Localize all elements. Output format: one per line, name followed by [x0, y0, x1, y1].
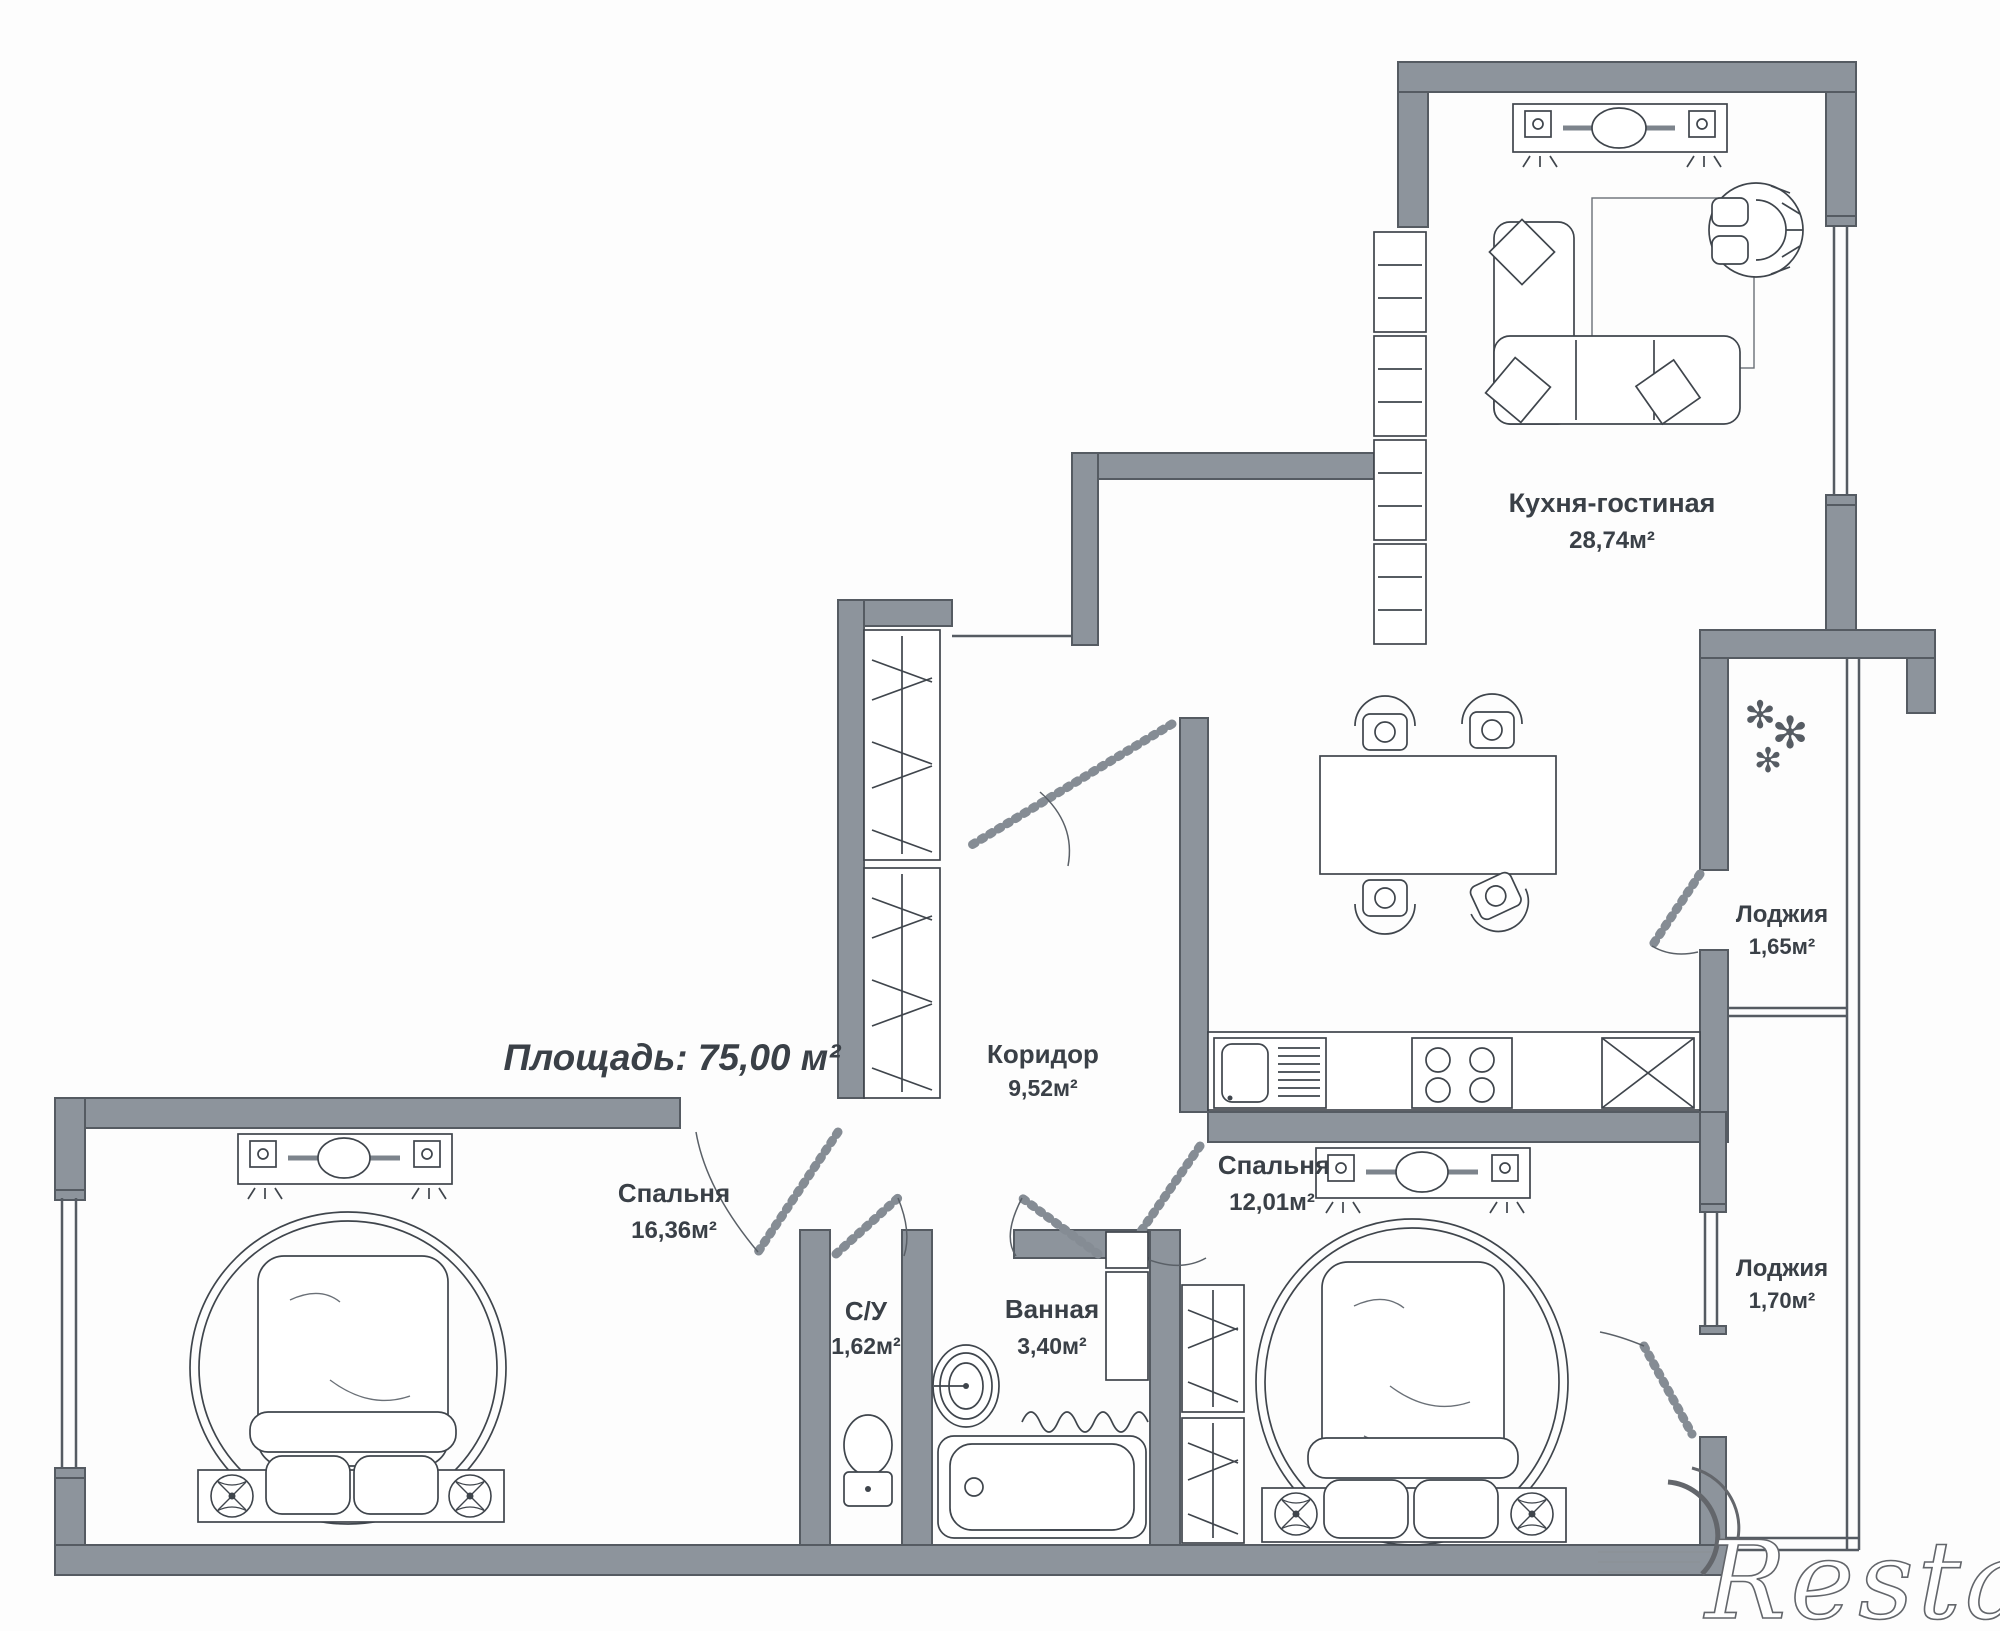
- label-bedroom-right-name: Спальня: [1218, 1150, 1330, 1180]
- bathroom-fixtures: [844, 1232, 1148, 1538]
- bathtub: [938, 1436, 1146, 1538]
- pillow: [354, 1456, 438, 1514]
- loggia1-door-leaf: [1652, 874, 1700, 946]
- label-bedroom-left-name: Спальня: [618, 1178, 730, 1208]
- label-bedroom-left-area: 16,36м²: [631, 1217, 717, 1244]
- kitchen-counter: [1208, 1032, 1700, 1110]
- loggia2-door-leaf: [1644, 1346, 1692, 1434]
- window-living-room: [1834, 226, 1847, 495]
- pillow: [266, 1456, 350, 1514]
- tv-stand-bedroom-left: [238, 1134, 452, 1199]
- label-wc-name: С/У: [845, 1296, 888, 1326]
- watermark-text: Restate: [1703, 1519, 2000, 1631]
- window-bedroom-left: [62, 1198, 76, 1468]
- bed-right: [1256, 1219, 1568, 1545]
- wardrobe-corridor: [864, 630, 940, 1098]
- wardrobe-bedroom-right: [1182, 1285, 1244, 1543]
- floor-plan: ✻ ✻ ✻: [0, 0, 2000, 1631]
- pillow: [1414, 1480, 1498, 1538]
- bathroom-sink: [933, 1345, 999, 1427]
- label-bedroom-right-area: 12,01м²: [1229, 1189, 1315, 1216]
- dining-table: [1320, 756, 1556, 874]
- floor-plan-drawing: ✻ ✻ ✻: [0, 0, 2000, 1631]
- label-loggia2-name: Лоджия: [1736, 1255, 1828, 1282]
- towel-radiator: [1022, 1412, 1148, 1432]
- corner-sofa: [1486, 219, 1740, 424]
- window-bedroom-right: [1705, 1212, 1717, 1326]
- label-kitchen-living-name: Кухня-гостиная: [1509, 488, 1716, 518]
- loggia-divider: [1728, 1008, 1847, 1016]
- label-kitchen-living-area: 28,74м²: [1569, 527, 1655, 554]
- round-armchair: [1709, 183, 1803, 277]
- label-corridor-area: 9,52м²: [1008, 1075, 1078, 1101]
- label-loggia1-area: 1,65м²: [1749, 934, 1815, 959]
- tv-stand-living: [1513, 104, 1727, 167]
- svg-text:✻: ✻: [1754, 741, 1783, 781]
- label-total-area: Площадь: 75,00 м²: [504, 1037, 843, 1078]
- label-bath-area: 3,40м²: [1017, 1333, 1087, 1359]
- bed-left: [190, 1212, 506, 1524]
- label-bath-name: Ванная: [1005, 1294, 1099, 1324]
- wc-door-leaf: [836, 1198, 898, 1254]
- pillow: [1324, 1480, 1408, 1538]
- label-corridor-name: Коридор: [987, 1039, 1099, 1069]
- shelving-vestibule: [1374, 232, 1426, 644]
- label-wc-area: 1,62м²: [831, 1333, 901, 1359]
- toilet: [844, 1415, 892, 1506]
- bedroom-left-furniture: [190, 1134, 506, 1524]
- loggia1-door-arc: [1652, 946, 1698, 954]
- bath-cabinet: [1106, 1232, 1148, 1380]
- plant-icon: ✻ ✻ ✻: [1744, 693, 1808, 781]
- tv-stand-bedroom-right: [1316, 1148, 1530, 1213]
- label-loggia2-area: 1,70м²: [1749, 1288, 1815, 1313]
- room-labels: Кухня-гостиная 28,74м² Площадь: 75,00 м²…: [504, 488, 1829, 1359]
- loggia2-door-arc: [1600, 1332, 1644, 1346]
- label-loggia1-name: Лоджия: [1736, 901, 1828, 928]
- entrance-door-leaf: [970, 724, 1172, 846]
- loggia-glazing-right: [1847, 658, 1859, 1550]
